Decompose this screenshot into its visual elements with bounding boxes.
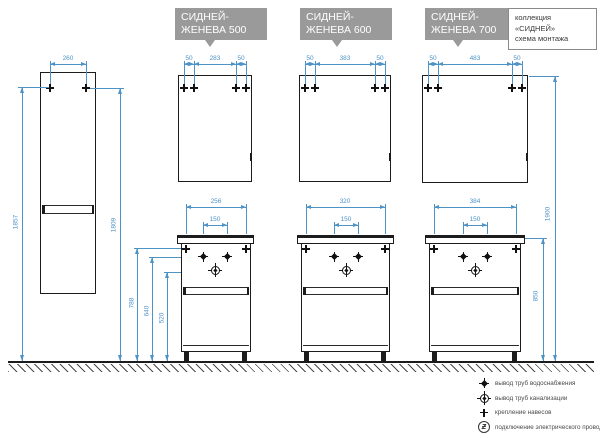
drawer-gap-end-cap: [431, 287, 434, 295]
foot: [381, 352, 386, 361]
info-line2: «СИДНЕЙ»: [515, 24, 590, 35]
tap-span-label: 150: [210, 216, 221, 223]
dimension-line: [167, 272, 168, 361]
tap-span-label: 150: [341, 216, 352, 223]
tap-span-label: 150: [470, 216, 481, 223]
callout-line1: СИДНЕЙ-: [431, 11, 511, 24]
drain-mark-icon: [208, 263, 222, 277]
extension-line: [134, 248, 181, 249]
hanger-mount-mark-icon: [381, 245, 389, 253]
callout-line1: СИДНЕЙ-: [306, 11, 388, 24]
dimension-line: [203, 225, 227, 226]
water-supply-mark-icon: [458, 252, 468, 262]
plinth-line: [303, 345, 388, 346]
hanger-mount-mark-icon: [242, 84, 250, 92]
tall-cabinet-height-left-label: 1857: [13, 215, 20, 229]
dimension-line: [463, 225, 487, 226]
drawer-gap-line: [303, 294, 388, 295]
dimension-line: [428, 64, 438, 65]
extension-line: [385, 204, 386, 234]
foot: [242, 352, 247, 361]
mirror-offset-right-label: 50: [376, 55, 383, 62]
dimension-line: [434, 207, 516, 208]
hanger-mount-mark-icon: [508, 84, 516, 92]
dimension-line: [152, 257, 153, 361]
hanger-mount-mark-icon: [46, 84, 54, 92]
hanger-mount-mark-icon: [434, 84, 442, 92]
mirror-offset-left-label: 50: [306, 55, 313, 62]
dimension-line: [543, 238, 544, 361]
extension-line: [385, 61, 386, 84]
hanger-mount-mark-icon: [182, 245, 190, 253]
foot: [512, 352, 517, 361]
legend-label-electric: подключение электрического провода: [495, 424, 600, 432]
hanger-mount-mark-icon: [480, 409, 488, 417]
hanger-mount-mark-icon: [301, 84, 309, 92]
mirror-offset-right-label: 50: [513, 55, 520, 62]
callout-sidney-geneva-700: СИДНЕЙ- ЖЕНЕВА 700: [425, 8, 515, 40]
drain-height-label: 520: [159, 313, 166, 324]
foot: [432, 352, 437, 361]
legend-label-hanger: крепление навесов: [495, 409, 551, 417]
electric-connection-icon: ƶ: [478, 421, 490, 433]
drain-mark-icon: [339, 263, 353, 277]
mirror-handle: [526, 153, 528, 161]
dimension-line: [186, 207, 246, 208]
mirror-offset-left-label: 50: [429, 55, 436, 62]
tall-cabinet-width-label: 260: [63, 55, 74, 62]
hanger-height-label: 788: [129, 298, 136, 309]
water-supply-mark-icon: [329, 252, 339, 262]
extension-line: [522, 61, 523, 84]
drawer-gap-end-cap: [517, 287, 520, 295]
hanger-mount-mark-icon: [381, 84, 389, 92]
tall-cabinet-shelf-line: [42, 205, 94, 206]
callout-pointer: [332, 40, 342, 47]
extension-line: [246, 204, 247, 234]
dimension-line: [137, 248, 138, 361]
extension-line: [487, 222, 488, 234]
dimension-line: [120, 88, 121, 361]
callout-pointer: [205, 40, 215, 47]
legend-label-drain: вывод труб канализации: [495, 395, 567, 403]
countertop-top-line: [178, 236, 253, 238]
ground-line: [8, 361, 594, 363]
callout-sidney-geneva-500: СИДНЕЙ- ЖЕНЕВА 500: [175, 8, 267, 40]
tall-cabinet-height-right-label: 1809: [111, 218, 118, 232]
callout-sidney-geneva-600: СИДНЕЙ- ЖЕНЕВА 600: [300, 8, 392, 40]
washbasin-cabinet-500-outline: [181, 243, 251, 352]
callout-line2: ЖЕНЕВА 500: [181, 24, 263, 37]
extension-line: [516, 204, 517, 234]
hanger-mount-mark-icon: [242, 245, 250, 253]
callout-line2: ЖЕНЕВА 700: [431, 24, 511, 37]
drawer-gap-line: [183, 294, 249, 295]
extension-line: [358, 222, 359, 234]
mirror-handle: [250, 153, 252, 161]
foot: [184, 352, 189, 361]
dimension-line: [306, 207, 385, 208]
water-supply-mark-icon: [222, 252, 232, 262]
hanger-mount-mark-icon: [180, 84, 188, 92]
mirror-span-label: 283: [210, 55, 221, 62]
callout-line2: ЖЕНЕВА 600: [306, 24, 388, 37]
mirror-span-label: 483: [470, 55, 481, 62]
drawer-gap-line: [303, 287, 388, 288]
hanger-mount-mark-icon: [518, 84, 526, 92]
dimension-line: [555, 76, 556, 361]
dimension-line: [194, 64, 236, 65]
drawer-gap-line: [183, 287, 249, 288]
drain-mark-icon: [468, 263, 482, 277]
info-line1: коллекция: [515, 13, 590, 24]
dimension-line: [22, 87, 23, 361]
water-supply-mark-icon: [479, 378, 489, 388]
water-supply-mark-icon: [353, 252, 363, 262]
callout-pointer: [453, 40, 463, 47]
dimension-line: [438, 64, 512, 65]
dimension-line: [315, 64, 375, 65]
info-line3: схема монтажа: [515, 34, 590, 45]
extension-line: [86, 61, 87, 84]
info-box: коллекция «СИДНЕЙ» схема монтажа: [508, 8, 597, 50]
foot: [304, 352, 309, 361]
hanger-mount-mark-icon: [430, 245, 438, 253]
dimension-line: [50, 64, 86, 65]
plinth-line: [183, 345, 249, 346]
tall-cabinet-outline: [40, 72, 96, 294]
extension-line: [246, 61, 247, 84]
hanger-mount-mark-icon: [311, 84, 319, 92]
mirror-top-height-label: 1900: [545, 207, 552, 221]
legend-label-water: вывод труб водоснабжения: [495, 380, 575, 388]
drawer-gap-end-cap: [247, 287, 250, 295]
washbasin-cabinet-700-outline: [429, 243, 521, 352]
hanger-mount-mark-icon: [371, 84, 379, 92]
extension-line: [227, 222, 228, 234]
mirror-span-label: 383: [340, 55, 351, 62]
callout-line1: СИДНЕЙ-: [181, 11, 263, 24]
mirror-offset-left-label: 50: [185, 55, 192, 62]
drawer-gap-end-cap: [183, 287, 186, 295]
dimension-line: [375, 64, 385, 65]
dimension-line: [512, 64, 522, 65]
dimension-line: [334, 225, 358, 226]
ground-hatch: [8, 364, 594, 372]
countertop-top-line: [426, 236, 524, 238]
hanger-mount-mark-icon: [424, 84, 432, 92]
dimension-line: [236, 64, 246, 65]
washbasin-cabinet-600-outline: [301, 243, 390, 352]
countertop-top-line: [298, 236, 393, 238]
mirror-handle: [389, 153, 391, 161]
hanger-mount-mark-icon: [190, 84, 198, 92]
drawer-gap-line: [431, 294, 519, 295]
drawer-gap-end-cap: [386, 287, 389, 295]
dimension-line: [305, 64, 315, 65]
hanger-mount-mark-icon: [512, 245, 520, 253]
mirror-offset-right-label: 50: [237, 55, 244, 62]
water-supply-mark-icon: [198, 252, 208, 262]
water-supply-mark-icon: [482, 252, 492, 262]
hanger-mount-mark-icon: [232, 84, 240, 92]
base-width-label: 320: [340, 198, 351, 205]
base-top-height-label: 850: [533, 291, 540, 302]
shelf-end-cap: [42, 205, 45, 214]
montage-scheme-page: СИДНЕЙ- ЖЕНЕВА 500 СИДНЕЙ- ЖЕНЕВА 600 СИ…: [0, 0, 600, 438]
tall-cabinet-shelf-line: [42, 213, 94, 214]
drawer-gap-line: [431, 287, 519, 288]
plinth-line: [431, 345, 519, 346]
hanger-mount-mark-icon: [302, 245, 310, 253]
drain-mark-icon: [477, 391, 491, 405]
drawer-gap-end-cap: [303, 287, 306, 295]
shelf-end-cap: [92, 205, 95, 214]
dimension-line: [184, 64, 194, 65]
base-width-label: 256: [211, 198, 222, 205]
water-height-label: 640: [144, 306, 151, 317]
base-width-label: 384: [470, 198, 481, 205]
hanger-mount-mark-icon: [82, 84, 90, 92]
